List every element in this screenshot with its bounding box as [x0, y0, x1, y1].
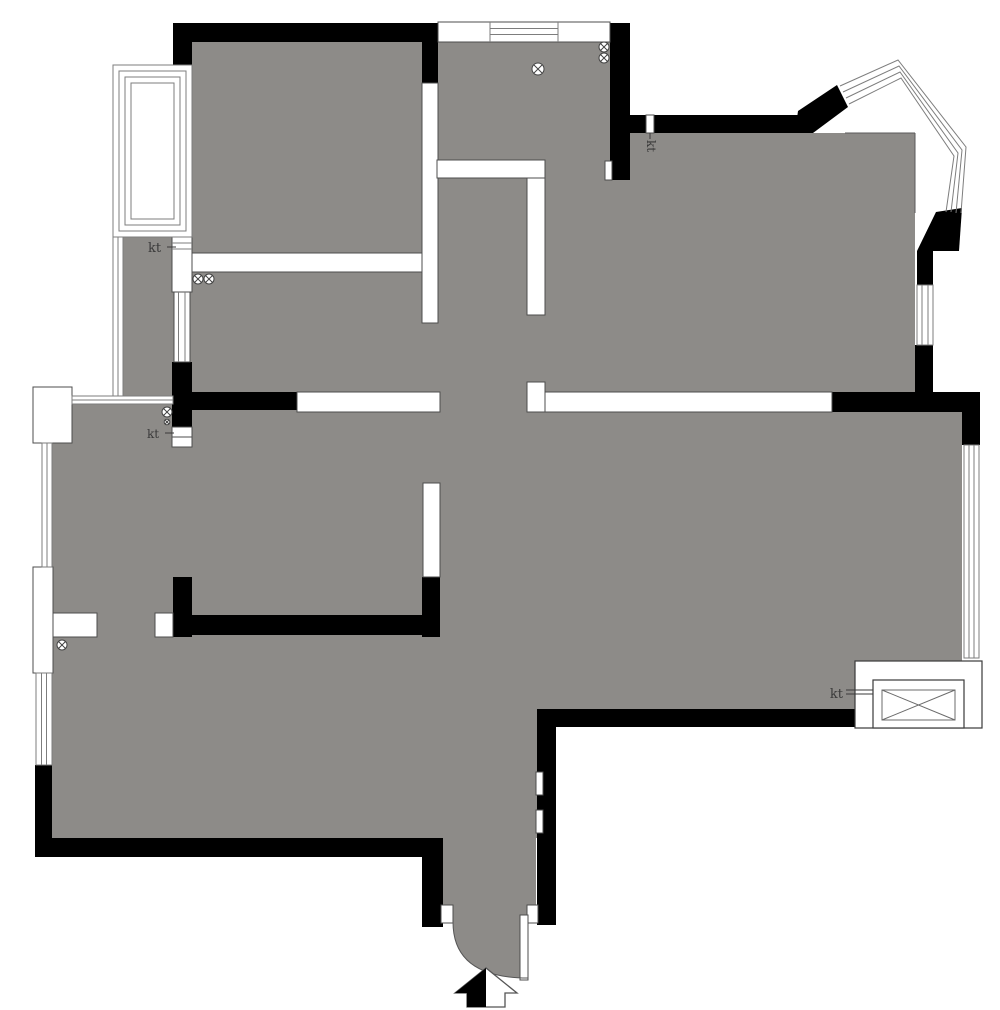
- wall-corridor-white-right: [545, 392, 832, 412]
- wall-right-upper-b: [915, 345, 933, 392]
- entry-jamb-left: [441, 905, 453, 923]
- wall-corridor-stub: [527, 382, 545, 412]
- glass-door-kitchen: [174, 292, 190, 362]
- pillar-left-top: [33, 387, 72, 443]
- pillar-left-mid: [33, 567, 53, 673]
- wall-topright-top: [630, 115, 808, 133]
- entry-door-leaf: [520, 915, 528, 980]
- window-right-upper: [917, 285, 933, 345]
- floor-plan-drawing: kt kt kt kt: [0, 0, 1000, 1010]
- wall-room3-right: [423, 483, 440, 577]
- wall-bay-angled-left: [795, 85, 848, 133]
- wall-living-bottom-right-h: [537, 709, 860, 727]
- bay-window-left: [113, 65, 192, 237]
- floor-living-lower: [52, 443, 537, 838]
- window-right-living: [964, 445, 979, 658]
- wall-corridor-white-left: [297, 392, 440, 412]
- floor-plan-page: kt kt kt kt: [0, 0, 1000, 1010]
- wall-midroom-right: [610, 23, 630, 180]
- wall-entry-left-corner: [422, 857, 443, 927]
- wall-midroom-bottom: [437, 160, 545, 178]
- wall-hall-vertical: [527, 178, 545, 315]
- ceiling-fixture-symbol: [599, 53, 609, 63]
- ceiling-fixture-symbol: [204, 274, 214, 284]
- floor-bedroom-top-left: [192, 42, 630, 412]
- wall-bedroom1-right: [422, 83, 438, 323]
- notch-entry-wall-a: [536, 772, 543, 795]
- ceiling-fixture-symbol: [532, 63, 544, 75]
- wall-room3-bottom: [173, 615, 440, 635]
- gap-topright-vent: [646, 115, 654, 133]
- label-kt-elevator: kt: [830, 687, 844, 702]
- elevator-cross: [882, 690, 955, 720]
- wall-bottom-main: [35, 838, 443, 857]
- ceiling-fixture-symbol: [162, 407, 172, 417]
- notch-midroom-door: [605, 161, 612, 180]
- label-kt-kitchen: kt: [148, 241, 162, 256]
- ceiling-fixture-symbol: [57, 640, 67, 650]
- window-left-a: [42, 443, 52, 567]
- wall-bedroom1-bottom: [192, 253, 438, 272]
- floor-room-top-right: [630, 133, 915, 392]
- label-kt-hall-door: kt: [147, 427, 159, 441]
- wall-bay-angled-right: [917, 208, 962, 251]
- wall-stub-left-b: [155, 613, 173, 637]
- wall-bedroom1-right-top: [422, 23, 438, 83]
- entry-jamb-right: [527, 905, 538, 923]
- elevator-shaft: [855, 661, 982, 728]
- entry-arrow-black-half: [455, 968, 486, 1007]
- window-top-middle: [438, 22, 610, 42]
- ceiling-fixture-symbol: [193, 274, 203, 284]
- ceiling-fixture-symbol-small: [164, 419, 170, 425]
- wall-stub-left-a: [52, 613, 97, 637]
- wall-right-upper-a: [917, 251, 933, 285]
- wall-left-lower: [35, 765, 52, 857]
- wall-corridor-left-black: [192, 392, 297, 410]
- window-corridor-thin: [72, 396, 173, 404]
- ceiling-fixture-symbol: [599, 42, 609, 52]
- wall-kitchen-hall: [172, 362, 192, 428]
- window-left-b: [36, 673, 52, 765]
- notch-entry-wall-b: [536, 810, 543, 833]
- window-kitchen-left: [113, 237, 123, 403]
- label-kt-balcony-vent: kt: [644, 140, 658, 152]
